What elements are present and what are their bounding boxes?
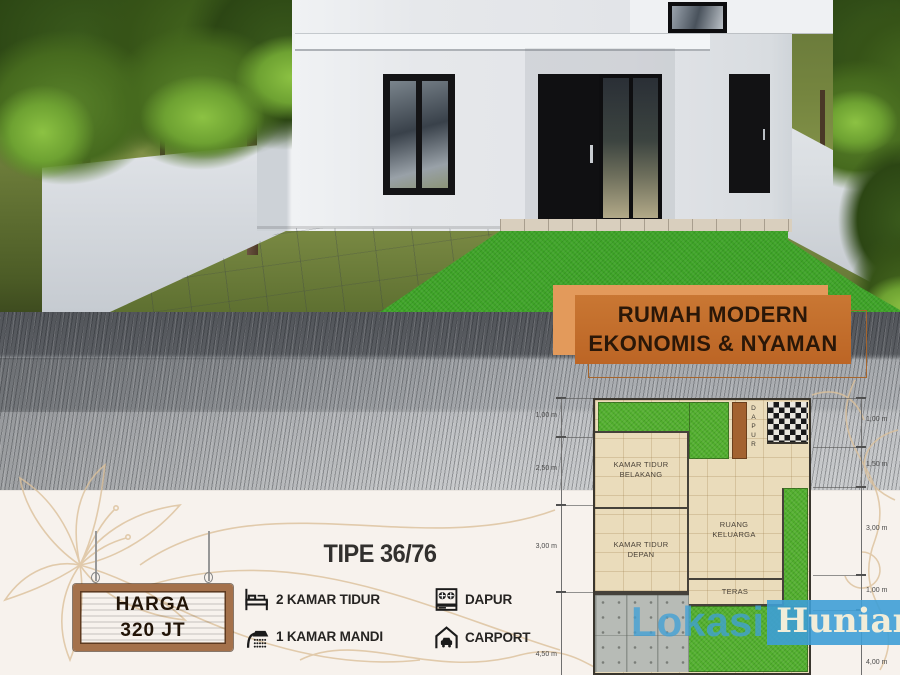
dimension-label: 1,00 m [866,416,900,423]
price-sign-label: HARGA [116,592,191,618]
house-3d-render [0,0,900,312]
plan-room-kamar-tidur-belakang: KAMAR TIDUR BELAKANG [595,431,689,507]
lokasi-hunian-logo: Lokasi Hunian [631,598,900,646]
clerestory-wall [630,0,835,34]
feature-label: 2 KAMAR TIDUR [276,589,406,609]
door-handle [763,129,765,140]
door-handle [590,145,593,163]
dimension-label: 1,50 m [866,461,900,468]
price-sign-value: 320 JT [120,618,185,644]
dimension-extension [813,575,861,576]
dimension-label: 4,00 m [866,659,900,666]
stove-icon [433,586,460,613]
dimension-label: 3,00 m [517,543,557,550]
dimension-extension [813,398,861,399]
front-window [383,74,455,195]
side-door [729,74,770,193]
real-estate-poster: RUMAH MODERN EKONOMIS & NYAMAN DAPUR KAM… [0,0,900,675]
dimension-label: 1,00 m [517,412,557,419]
price-sign: HARGA 320 JT [73,584,233,651]
trees-right [833,0,900,312]
glass-door [599,74,662,222]
plan-kitchen-tiles [767,402,808,444]
door-stile [629,78,633,218]
dimension-extension [561,398,593,399]
feature-label: 1 KAMAR MANDI [276,626,406,646]
type-title: TIPE 36/76 [300,540,460,569]
logo-part-hunian: Hunian [767,600,900,645]
sign-hook [204,572,213,583]
banner-line-1: RUMAH MODERN [618,301,809,330]
bed-icon [243,586,270,613]
title-banner: RUMAH MODERN EKONOMIS & NYAMAN [575,295,851,364]
dimension-extension [561,505,593,506]
plan-room-kamar-tidur-depan: KAMAR TIDUR DEPAN [595,507,689,593]
window-mullion [416,81,422,188]
plan-room-dapur: DAPUR [750,405,763,447]
plan-garden-strip [782,488,808,608]
logo-part-lokasi: Lokasi [631,598,764,646]
dimension-label: 4,50 m [517,651,557,658]
banner-line-2: EKONOMIS & NYAMAN [588,330,837,359]
trees-left [0,0,292,260]
terrace-tiles [500,219,792,232]
plan-room-ruang-keluarga: RUANG KELUARGA [691,500,777,560]
dimension-extension [813,487,861,488]
deck-shadow [0,412,560,492]
feature-label: DAPUR [465,589,585,609]
feature-label: CARPORT [465,627,585,647]
shower-icon [243,623,270,650]
clerestory-window [668,2,727,33]
plan-kitchen-door [732,402,747,459]
dimension-extension [813,447,861,448]
plan-garden-strip [689,402,729,459]
dimension-label: 2,50 m [517,465,557,472]
dimension-extension [561,437,593,438]
dimension-label: 1,00 m [866,587,900,594]
carport-icon [433,624,460,651]
dimension-label: 3,00 m [866,525,900,532]
sign-hook [91,572,100,583]
